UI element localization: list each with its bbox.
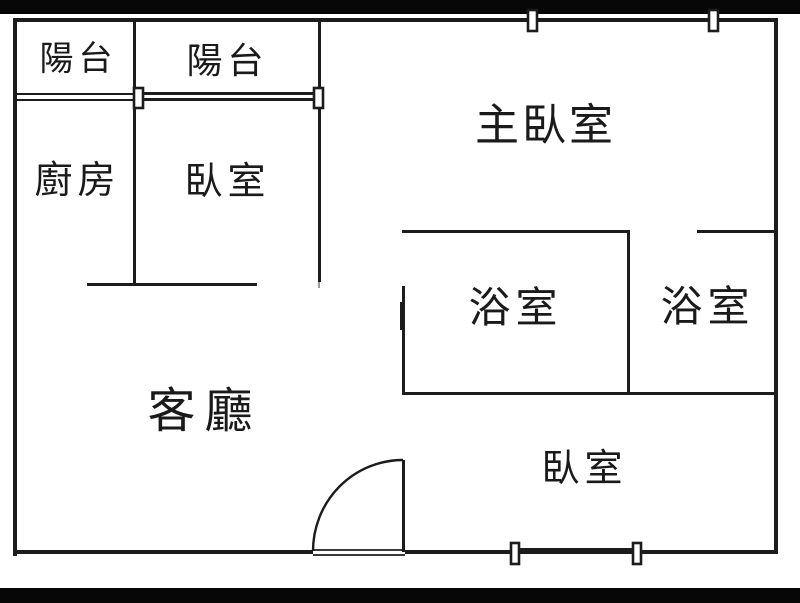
exterior-wall-right [774, 18, 778, 554]
wall-master-bedroom-left [318, 20, 321, 282]
wall-kitchen-bedroom-bottom [87, 283, 257, 286]
window-cap-bottom-left [511, 543, 519, 564]
wall-bathroom-left-top [402, 230, 629, 233]
kitchen-window-line-inner [15, 99, 133, 101]
kitchen-window-line-outer [15, 93, 133, 95]
entrance-door-leaf [402, 460, 405, 552]
room-label-bathroom-right: 浴室 [655, 287, 754, 329]
room-label-master-bedroom: 主臥室 [472, 104, 616, 148]
balcony-window-line-inner [143, 98, 315, 101]
window-cap-balcony-right [314, 88, 323, 108]
room-label-bedroom-bottom: 臥室 [536, 450, 627, 488]
wall-bathrooms-bottom [402, 392, 774, 395]
window-cap-bottom-right [633, 543, 641, 564]
wall-bathroom-right-top [697, 230, 774, 233]
bathroom-door-mark [400, 302, 405, 330]
exterior-wall-bottom-left [13, 550, 313, 554]
room-label-kitchen: 廚房 [29, 162, 120, 200]
exterior-wall-top [13, 18, 778, 22]
exterior-wall-left [13, 18, 17, 556]
room-label-living-room: 客廳 [138, 388, 261, 436]
window-cap-balcony-left [134, 88, 143, 108]
wall-bathrooms-divider [627, 230, 630, 395]
window-cap-master-left [528, 10, 537, 31]
entrance-door-arc [313, 460, 403, 551]
room-label-bedroom-top: 臥室 [179, 163, 270, 201]
room-label-bathroom-left: 浴室 [463, 288, 562, 330]
room-label-balcony-main: 陽台 [181, 43, 268, 79]
window-cap-master-right [709, 10, 718, 31]
wall-master-bedroom-left-fade [318, 282, 320, 288]
balcony-window-line-outer [143, 92, 315, 95]
room-label-balcony-left: 陽台 [35, 43, 118, 77]
entrance-threshold-line-bottom [313, 554, 405, 556]
floor-plan-image: 陽台 陽台 廚房 臥室 主臥室 浴室 浴室 客廳 臥室 [0, 0, 800, 603]
wall-balcony-kitchen-divider [133, 20, 136, 285]
bedroom-bottom-window-line [518, 548, 632, 553]
entrance-threshold-line-top [313, 549, 405, 551]
